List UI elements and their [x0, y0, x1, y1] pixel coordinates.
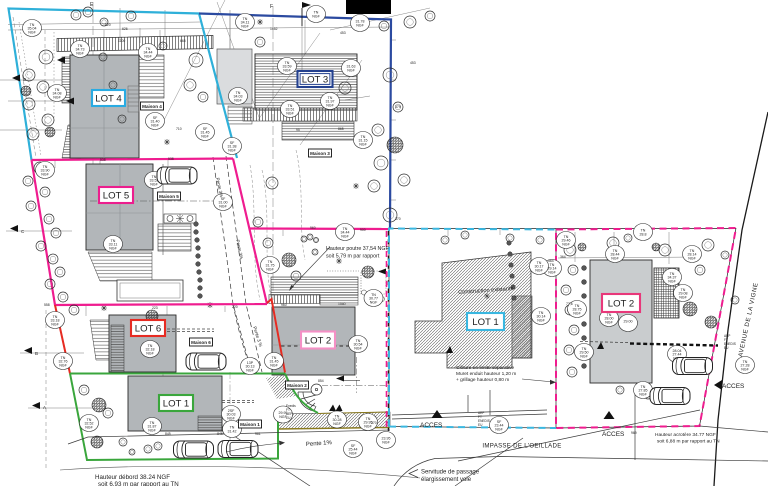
- svg-text:710: 710: [176, 127, 182, 131]
- svg-text:558: 558: [44, 303, 50, 307]
- svg-text:NGF: NGF: [150, 182, 158, 186]
- svg-text:LOT 2: LOT 2: [608, 299, 635, 310]
- svg-text:Maison 1: Maison 1: [240, 422, 260, 427]
- svg-text:220: 220: [232, 305, 238, 309]
- svg-text:EU: EU: [478, 423, 483, 427]
- svg-text:-845-: -845-: [216, 432, 224, 436]
- svg-text:538: 538: [100, 158, 106, 162]
- svg-text:NGF: NGF: [148, 428, 156, 432]
- svg-text:ACCES: ACCES: [420, 422, 443, 429]
- svg-text:NGF: NGF: [246, 368, 254, 372]
- svg-text:NGF: NGF: [28, 30, 36, 34]
- svg-text:NGF: NGF: [639, 392, 647, 396]
- svg-text:900: 900: [360, 228, 366, 232]
- svg-text:NGF: NGF: [341, 234, 349, 238]
- svg-text:1100: 1100: [118, 39, 125, 43]
- svg-text:Maison 3: Maison 3: [310, 151, 330, 156]
- svg-text:ACCES: ACCES: [602, 431, 625, 438]
- svg-text:NGF: NGF: [741, 367, 749, 371]
- svg-text:Hauteur débord 38.24 NGF: Hauteur débord 38.24 NGF: [95, 474, 170, 481]
- svg-text:NGF: NGF: [349, 451, 357, 455]
- svg-text:NGF: NGF: [354, 346, 362, 350]
- svg-text:Hauteur poutre 37,54 NGF: Hauteur poutre 37,54 NGF: [326, 246, 389, 252]
- svg-text:NGF: NGF: [201, 134, 209, 138]
- svg-text:NGF: NGF: [347, 68, 355, 72]
- svg-text:NGF: NGF: [326, 103, 334, 107]
- svg-text:LOT 3: LOT 3: [302, 75, 329, 86]
- svg-text:soit 5,79 m par rapport: soit 5,79 m par rapport: [326, 254, 380, 260]
- svg-text:370: 370: [371, 421, 377, 425]
- svg-text:77,6: 77,6: [566, 302, 573, 306]
- svg-text:960: 960: [310, 226, 316, 230]
- svg-text:453: 453: [340, 31, 346, 35]
- svg-text:NGF: NGF: [151, 123, 159, 127]
- svg-text:NGF: NGF: [562, 242, 570, 246]
- svg-text:620: 620: [105, 23, 111, 27]
- svg-text:LOT 5: LOT 5: [103, 191, 130, 202]
- svg-text:NGF: NGF: [41, 172, 49, 176]
- svg-text:NGF: NGF: [356, 23, 364, 27]
- svg-text:379: 379: [395, 105, 401, 109]
- svg-text:NGF: NGF: [234, 98, 242, 102]
- svg-text:soit 6,88 m par rapport au TN: soit 6,88 m par rapport au TN: [657, 439, 720, 445]
- svg-text:LOT 6: LOT 6: [135, 324, 162, 335]
- svg-text:865: 865: [338, 127, 344, 131]
- svg-text:LOT 1: LOT 1: [472, 317, 499, 328]
- svg-text:NGF: NGF: [668, 279, 676, 283]
- svg-text:NGF: NGF: [535, 268, 543, 272]
- svg-text:960: 960: [281, 303, 287, 307]
- svg-text:NGF: NGF: [85, 425, 93, 429]
- svg-text:EU: EU: [724, 346, 729, 350]
- svg-text:NGF: NGF: [76, 51, 84, 55]
- svg-text:1652: 1652: [270, 27, 278, 31]
- svg-text:538: 538: [168, 157, 174, 161]
- svg-text:élargissement voie: élargissement voie: [421, 477, 472, 483]
- svg-text:NGF: NGF: [382, 440, 390, 444]
- svg-text:961: 961: [255, 432, 261, 436]
- svg-text:370: 370: [395, 217, 401, 221]
- svg-text:845: 845: [165, 432, 171, 436]
- svg-text:NGF: NGF: [495, 427, 503, 431]
- svg-text:665: 665: [180, 39, 186, 43]
- svg-text:NGF: NGF: [333, 422, 341, 426]
- svg-text:NGF: NGF: [227, 416, 235, 420]
- svg-text:A: A: [43, 405, 46, 410]
- svg-text:NGF: NGF: [270, 363, 278, 367]
- svg-text:364: 364: [548, 259, 554, 263]
- svg-text:95: 95: [296, 128, 300, 132]
- svg-text:NGF: NGF: [144, 54, 152, 58]
- svg-text:NGF: NGF: [580, 354, 588, 358]
- svg-text:Clôture en limite séparative: Clôture en limite séparative: [456, 365, 514, 371]
- svg-text:NGF: NGF: [241, 24, 249, 28]
- svg-text:31.42: 31.42: [228, 429, 237, 433]
- svg-text:IMPASSE DE L'OEILLADE: IMPASSE DE L'OEILLADE: [482, 443, 561, 450]
- svg-text:ACCES: ACCES: [722, 383, 745, 390]
- svg-text:NGF: NGF: [611, 256, 619, 260]
- svg-text:EU: EU: [286, 416, 291, 420]
- svg-text:NGF: NGF: [364, 424, 372, 428]
- svg-text:NGF: NGF: [59, 363, 67, 367]
- svg-text:NGF: NGF: [573, 311, 581, 315]
- svg-text:Maison 4: Maison 4: [142, 104, 162, 109]
- svg-text:soit 6,93 m par rapport au TN: soit 6,93 m par rapport au TN: [98, 481, 179, 486]
- svg-text:Hauteur acrotère 34.77 NGF: Hauteur acrotère 34.77 NGF: [655, 432, 716, 438]
- svg-text:NGF: NGF: [370, 300, 378, 304]
- svg-text:NGF: NGF: [537, 318, 545, 322]
- svg-text:LOT 2: LOT 2: [305, 336, 332, 347]
- svg-text:29.00: 29.00: [624, 320, 633, 324]
- svg-text:969: 969: [631, 431, 637, 435]
- svg-text:453: 453: [410, 61, 416, 65]
- svg-text:Maison 6: Maison 6: [191, 340, 211, 345]
- svg-text:NGF: NGF: [51, 322, 59, 326]
- svg-text:Muret enduit hauteur 1,20 m: Muret enduit hauteur 1,20 m: [456, 371, 516, 377]
- svg-text:Maison 5: Maison 5: [159, 194, 179, 199]
- svg-text:NGF: NGF: [109, 246, 117, 250]
- svg-text:223: 223: [152, 306, 158, 310]
- svg-text:NGF: NGF: [286, 111, 294, 115]
- svg-text:NGF: NGF: [219, 204, 227, 208]
- svg-text:Maison 2: Maison 2: [287, 383, 307, 388]
- svg-text:LOT 1: LOT 1: [163, 399, 190, 410]
- svg-text:364: 364: [560, 255, 566, 259]
- svg-text:NGF: NGF: [53, 95, 61, 99]
- svg-text:NGF: NGF: [548, 270, 556, 274]
- svg-text:28.8: 28.8: [640, 232, 647, 236]
- svg-text:1040: 1040: [338, 302, 346, 306]
- svg-text:LOT 4: LOT 4: [95, 94, 122, 105]
- svg-text:NGF: NGF: [359, 142, 367, 146]
- svg-text:NGF: NGF: [228, 148, 236, 152]
- svg-text:NGF: NGF: [146, 351, 154, 355]
- svg-text:NGF: NGF: [605, 320, 613, 324]
- svg-text:+ grillage hauteur 0,80 m: + grillage hauteur 0,80 m: [456, 377, 509, 383]
- svg-text:626: 626: [122, 27, 128, 31]
- svg-text:NGF: NGF: [266, 267, 274, 271]
- svg-text:NGF: NGF: [679, 295, 687, 299]
- svg-text:NGF: NGF: [283, 68, 291, 72]
- svg-text:854: 854: [318, 379, 324, 383]
- svg-text:NGF: NGF: [688, 256, 696, 260]
- svg-text:NGF: NGF: [312, 14, 320, 18]
- svg-text:F: F: [270, 4, 273, 10]
- svg-text:B: B: [35, 351, 38, 356]
